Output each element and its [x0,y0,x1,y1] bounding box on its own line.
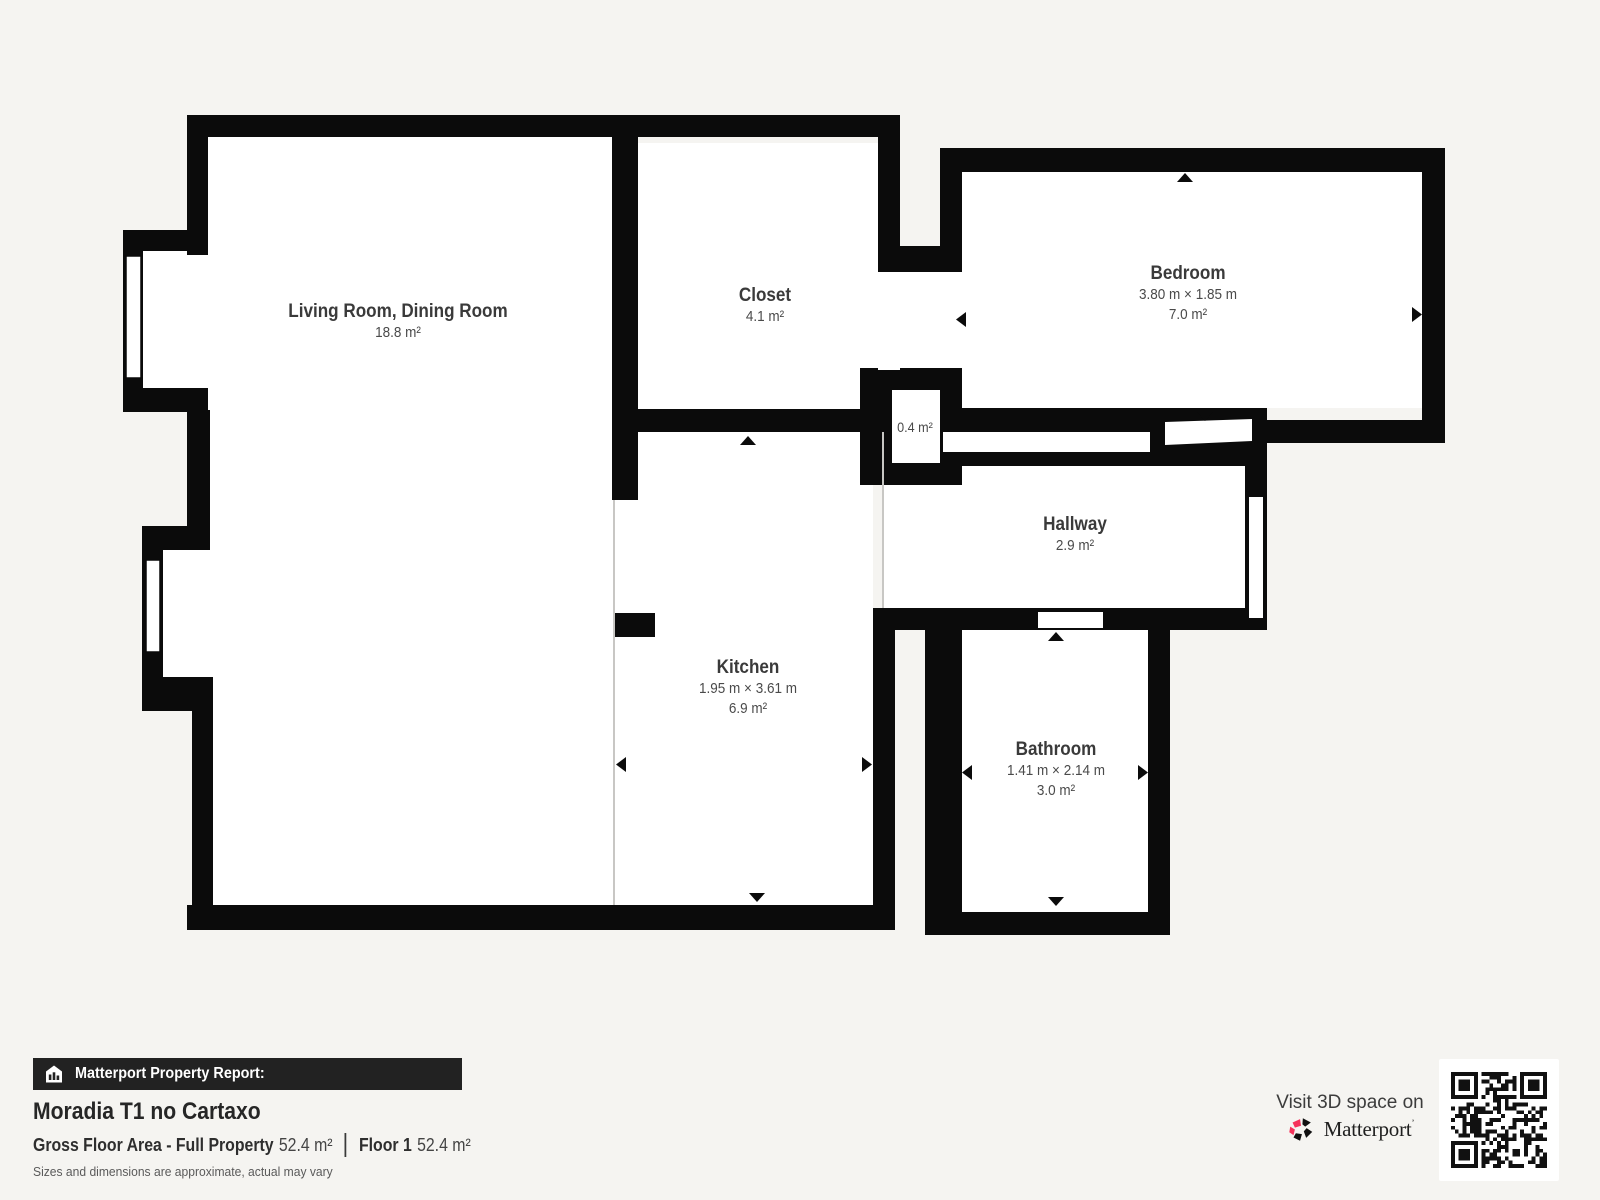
room-label-bedroom: Bedroom 3.80 m × 1.85 m 7.0 m² [1139,263,1237,325]
wall-top [187,115,900,137]
room-area: 0.4 m² [897,417,933,437]
matterport-wordmark: Matterport’ [1324,1117,1415,1142]
living-window-bay-1 [143,251,213,388]
report-header-bar: Matterport Property Report: [33,1058,462,1090]
living-room-floor [208,137,614,905]
qr-code [1451,1072,1547,1168]
wall-left-mid-column [187,410,210,528]
matterport-pinwheel-icon [1286,1114,1316,1144]
living-window-bay-2 [163,550,215,677]
wall-kitchen-stub [613,613,655,637]
floor1-label: Floor 1 [359,1135,412,1156]
room-area: 4.1 m² [739,307,791,327]
wall-bottom [187,905,895,930]
qr-code-card[interactable] [1439,1059,1559,1181]
gross-floor-area-label: Gross Floor Area - Full Property [33,1135,274,1156]
property-title: Moradia T1 no Cartaxo [33,1098,261,1126]
window-bay2 [146,560,160,652]
room-label-bathroom: Bathroom 1.41 m × 2.14 m 3.0 m² [1007,739,1105,801]
room-label-small-closet: 0.4 m² [897,417,933,437]
wall-left-bottom-column [192,705,213,930]
room-area: 7.0 m² [1139,305,1237,325]
room-area: 3.0 m² [1007,781,1105,801]
door-bedroom-hallway [1165,419,1252,445]
closet-passage-opening [878,272,900,370]
window-bay1 [126,256,141,378]
floor-area-stats: Gross Floor Area - Full Property 52.4 m²… [33,1133,471,1157]
wall-bathroom-left [925,630,962,935]
wall-bedroom-bottom-right [1252,420,1445,443]
floor-plan [0,0,1600,1200]
visit-3d-space-text: Visit 3D space on [1255,1092,1445,1114]
floor1-value: 52.4 m² [417,1135,471,1156]
wall-bay1-bottom [123,388,208,412]
wall-kitchen-right [873,608,895,930]
door-bathroom [1038,612,1103,628]
stats-divider [345,1133,347,1157]
room-area: 18.8 m² [288,323,507,343]
room-label-hallway: Hallway 2.9 m² [1043,514,1107,556]
room-label-kitchen: Kitchen 1.95 m × 3.61 m 6.9 m² [699,657,797,719]
room-name: Living Room, Dining Room [288,301,507,323]
room-area: 2.9 m² [1043,536,1107,556]
disclaimer-text: Sizes and dimensions are approximate, ac… [33,1164,333,1179]
room-name: Kitchen [699,657,797,679]
room-name: Closet [739,285,791,307]
report-bar-label: Matterport Property Report: [75,1065,265,1083]
room-label-closet: Closet 4.1 m² [739,285,791,327]
room-floors [143,137,1422,912]
wall-bedroom-top [940,148,1445,172]
wall-bedroom-right [1422,148,1445,443]
brand-trademark: ’ [1412,1118,1415,1128]
room-dims: 1.95 m × 3.61 m [699,679,797,699]
matterport-logo-row: Matterport’ [1255,1112,1445,1146]
room-name: Hallway [1043,514,1107,536]
room-dims: 1.41 m × 2.14 m [1007,761,1105,781]
room-name: Bathroom [1007,739,1105,761]
wall-closet-bottom [615,409,878,432]
room-label-living-room: Living Room, Dining Room 18.8 m² [288,301,507,343]
house-chart-icon [44,1064,64,1084]
sliding-door-bedroom [943,432,1150,452]
room-name: Bedroom [1139,263,1237,285]
wall-bathroom-right [1148,630,1170,935]
wall-bathroom-bottom [925,912,1170,935]
gross-floor-area-value: 52.4 m² [279,1135,333,1156]
wall-living-closet [612,115,638,500]
room-dims: 3.80 m × 1.85 m [1139,285,1237,305]
door-hallway-right [1249,497,1263,618]
room-area: 6.9 m² [699,699,797,719]
